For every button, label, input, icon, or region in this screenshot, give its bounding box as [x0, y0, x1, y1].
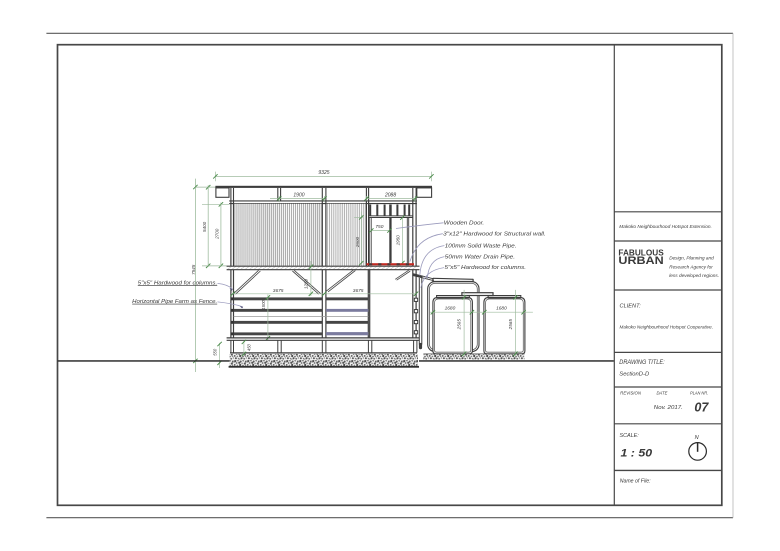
svg-text:07: 07 [694, 400, 709, 415]
svg-text:less developed regions.: less developed regions. [669, 273, 719, 279]
svg-text:SCALE:: SCALE: [620, 433, 640, 439]
svg-text:Name of File:: Name of File: [620, 479, 651, 485]
svg-text:100mm Solid Waste Pipe.: 100mm Solid Waste Pipe. [445, 243, 517, 249]
svg-text:Nov. 2017.: Nov. 2017. [654, 405, 683, 411]
svg-text:1680: 1680 [496, 305, 507, 311]
svg-text:DRAWING TITLE:: DRAWING TITLE: [619, 359, 665, 366]
svg-text:Makoko Neighbourhood Hotspot E: Makoko Neighbourhood Hotspot Extension. [619, 224, 712, 229]
svg-text:CLIENT:: CLIENT: [620, 304, 642, 310]
svg-text:5400: 5400 [202, 221, 207, 232]
svg-text:1 : 50: 1 : 50 [621, 448, 653, 460]
svg-text:3675: 3675 [353, 288, 364, 294]
svg-text:1250: 1250 [303, 278, 308, 289]
svg-text:REVISION: REVISION [620, 391, 642, 396]
svg-text:Wooden Door.: Wooden Door. [444, 220, 484, 226]
svg-text:1680: 1680 [445, 305, 456, 311]
svg-text:550: 550 [212, 348, 217, 356]
svg-text:3675: 3675 [273, 288, 284, 294]
svg-text:2088: 2088 [384, 192, 396, 198]
svg-text:1900: 1900 [293, 192, 304, 198]
svg-text:2565: 2565 [457, 319, 462, 331]
svg-text:URBAN: URBAN [618, 255, 663, 267]
svg-text:2700: 2700 [214, 228, 219, 240]
svg-text:450: 450 [247, 343, 252, 351]
svg-text:SectionD-D: SectionD-D [619, 371, 649, 377]
svg-text:1950: 1950 [395, 235, 400, 246]
svg-text:5"x5" Hardwood for columns.: 5"x5" Hardwood for columns. [445, 265, 527, 271]
svg-text:PLAN NR.: PLAN NR. [690, 391, 708, 396]
svg-text:Design, Planning and: Design, Planning and [669, 256, 714, 262]
svg-text:Makoko Neighbourhood Hotspot C: Makoko Neighbourhood Hotspot Cooperative… [620, 324, 714, 329]
svg-text:2600: 2600 [355, 236, 360, 248]
svg-text:7545: 7545 [191, 264, 196, 275]
svg-text:DATE: DATE [657, 391, 668, 396]
svg-text:Research Agency for: Research Agency for [669, 264, 713, 270]
svg-text:9325: 9325 [318, 170, 329, 176]
svg-text:750: 750 [375, 224, 383, 230]
svg-text:1500: 1500 [261, 300, 266, 310]
svg-text:50mm Water Drain Pipe.: 50mm Water Drain Pipe. [445, 254, 515, 260]
svg-text:2565: 2565 [508, 319, 513, 331]
svg-text:3"x12" Hardwood for Structural: 3"x12" Hardwood for Structural wall. [443, 231, 546, 237]
